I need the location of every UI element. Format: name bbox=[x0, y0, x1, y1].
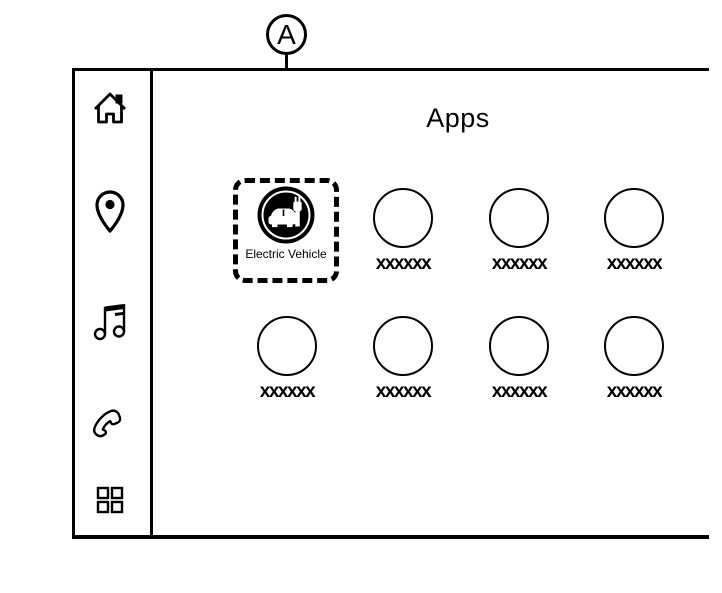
app-label-placeholder: xxxxxx bbox=[229, 381, 345, 403]
callout-a-circle: A bbox=[266, 14, 307, 55]
infotainment-screen bbox=[72, 68, 709, 539]
app-icon-placeholder bbox=[257, 316, 317, 376]
electric-vehicle-icon bbox=[257, 186, 315, 244]
app-label-placeholder: xxxxxx bbox=[345, 381, 461, 403]
sidebar-item-apps[interactable] bbox=[88, 478, 132, 522]
app-icon-placeholder bbox=[489, 316, 549, 376]
sidebar-item-phone[interactable] bbox=[88, 400, 132, 444]
callout-a-label: A bbox=[277, 19, 296, 51]
app-label-placeholder: xxxxxx bbox=[576, 253, 692, 275]
app-tile-electric-vehicle[interactable]: Electric Vehicle bbox=[233, 178, 339, 283]
app-tile-placeholder[interactable]: xxxxxx bbox=[461, 316, 577, 403]
app-icon-placeholder bbox=[489, 188, 549, 248]
app-label-placeholder: xxxxxx bbox=[576, 381, 692, 403]
app-label-placeholder: xxxxxx bbox=[461, 253, 577, 275]
apps-grid-icon bbox=[93, 483, 127, 517]
location-pin-icon bbox=[93, 190, 127, 234]
app-tile-placeholder[interactable]: xxxxxx bbox=[345, 316, 461, 403]
app-label-placeholder: xxxxxx bbox=[345, 253, 461, 275]
app-label-placeholder: xxxxxx bbox=[461, 381, 577, 403]
phone-handset-icon bbox=[90, 402, 130, 442]
page-title: Apps bbox=[358, 103, 558, 134]
app-tile-placeholder[interactable]: xxxxxx bbox=[345, 188, 461, 275]
app-tile-placeholder[interactable]: xxxxxx bbox=[229, 316, 345, 403]
app-tile-placeholder[interactable]: xxxxxx bbox=[576, 188, 692, 275]
app-label-electric-vehicle: Electric Vehicle bbox=[245, 247, 326, 261]
app-tile-placeholder[interactable]: xxxxxx bbox=[576, 316, 692, 403]
music-note-icon bbox=[91, 300, 129, 342]
sidebar-item-home[interactable] bbox=[88, 86, 132, 130]
app-icon-placeholder bbox=[373, 188, 433, 248]
app-icon-placeholder bbox=[604, 188, 664, 248]
app-icon-placeholder bbox=[373, 316, 433, 376]
home-icon bbox=[90, 89, 130, 127]
sidebar-item-navigation[interactable] bbox=[88, 190, 132, 234]
manual-figure: A bbox=[0, 0, 722, 593]
app-icon-placeholder bbox=[604, 316, 664, 376]
sidebar-divider bbox=[150, 70, 153, 537]
app-tile-placeholder[interactable]: xxxxxx bbox=[461, 188, 577, 275]
sidebar-item-audio[interactable] bbox=[88, 299, 132, 343]
